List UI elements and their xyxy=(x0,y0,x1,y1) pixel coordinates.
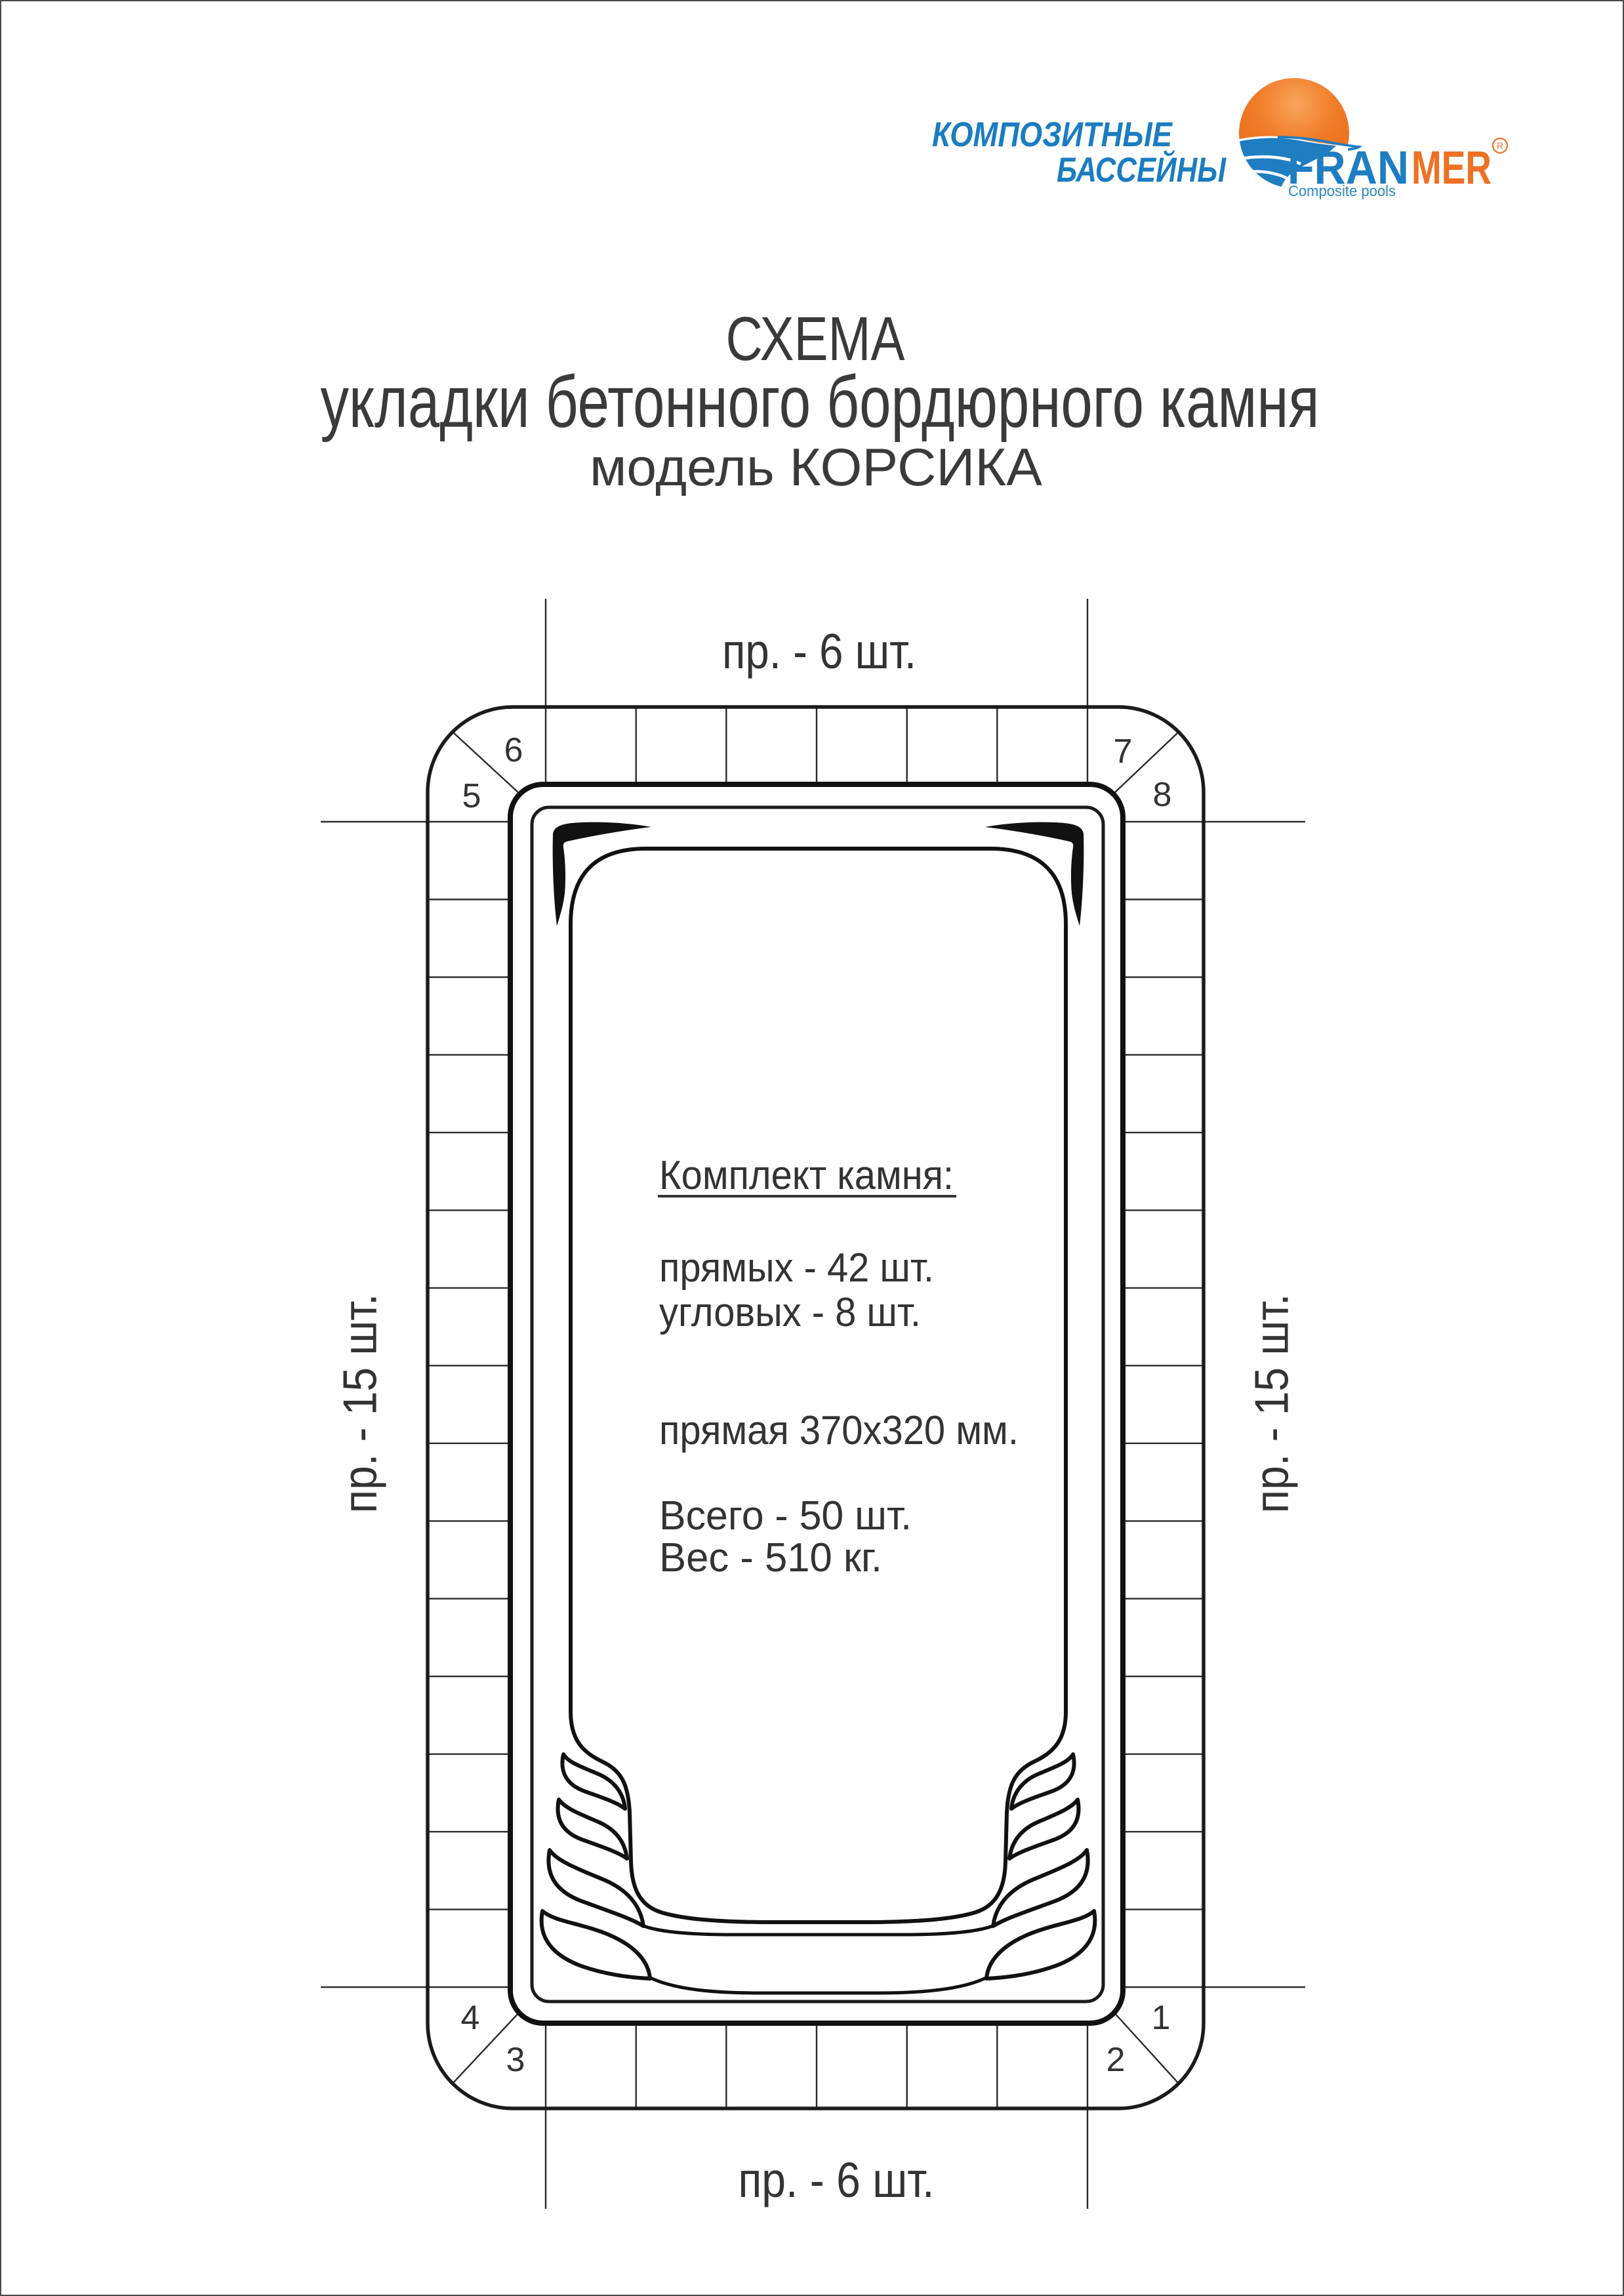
svg-text:4: 4 xyxy=(461,1999,480,2037)
svg-text:6: 6 xyxy=(504,731,523,769)
svg-text:2: 2 xyxy=(1106,2041,1126,2079)
svg-text:прямая 370х320 мм.: прямая 370х320 мм. xyxy=(659,1408,1019,1453)
svg-text:1: 1 xyxy=(1152,1999,1171,2037)
svg-text:угловых - 8 шт.: угловых - 8 шт. xyxy=(659,1290,921,1335)
svg-text:КОМПОЗИТНЫЕ: КОМПОЗИТНЫЕ xyxy=(932,115,1173,154)
svg-text:Composite pools: Composite pools xyxy=(1288,182,1396,199)
svg-text:модель КОРСИКА: модель КОРСИКА xyxy=(590,438,1042,497)
svg-text:MER: MER xyxy=(1411,142,1492,194)
svg-text:7: 7 xyxy=(1114,733,1133,771)
svg-text:пр. - 6 шт.: пр. - 6 шт. xyxy=(739,2152,935,2207)
svg-text:пр. - 6 шт.: пр. - 6 шт. xyxy=(722,624,916,679)
svg-text:5: 5 xyxy=(462,777,481,815)
svg-text:пр. - 15 шт.: пр. - 15 шт. xyxy=(1246,1294,1299,1514)
svg-text:пр. - 15 шт.: пр. - 15 шт. xyxy=(335,1294,387,1514)
svg-text:3: 3 xyxy=(506,2041,525,2079)
svg-text:R: R xyxy=(1497,140,1503,151)
svg-text:8: 8 xyxy=(1153,776,1172,814)
svg-text:Всего - 50 шт.: Всего - 50 шт. xyxy=(659,1493,912,1539)
svg-text:укладки бетонного бордюрного к: укладки бетонного бордюрного камня xyxy=(321,361,1320,443)
svg-text:прямых - 42 шт.: прямых - 42 шт. xyxy=(659,1245,934,1291)
svg-text:Вес - 510 кг.: Вес - 510 кг. xyxy=(659,1535,882,1581)
svg-text:БАССЕЙНЫ: БАССЕЙНЫ xyxy=(1057,149,1227,190)
svg-text:Комплект камня:: Комплект камня: xyxy=(659,1153,954,1198)
